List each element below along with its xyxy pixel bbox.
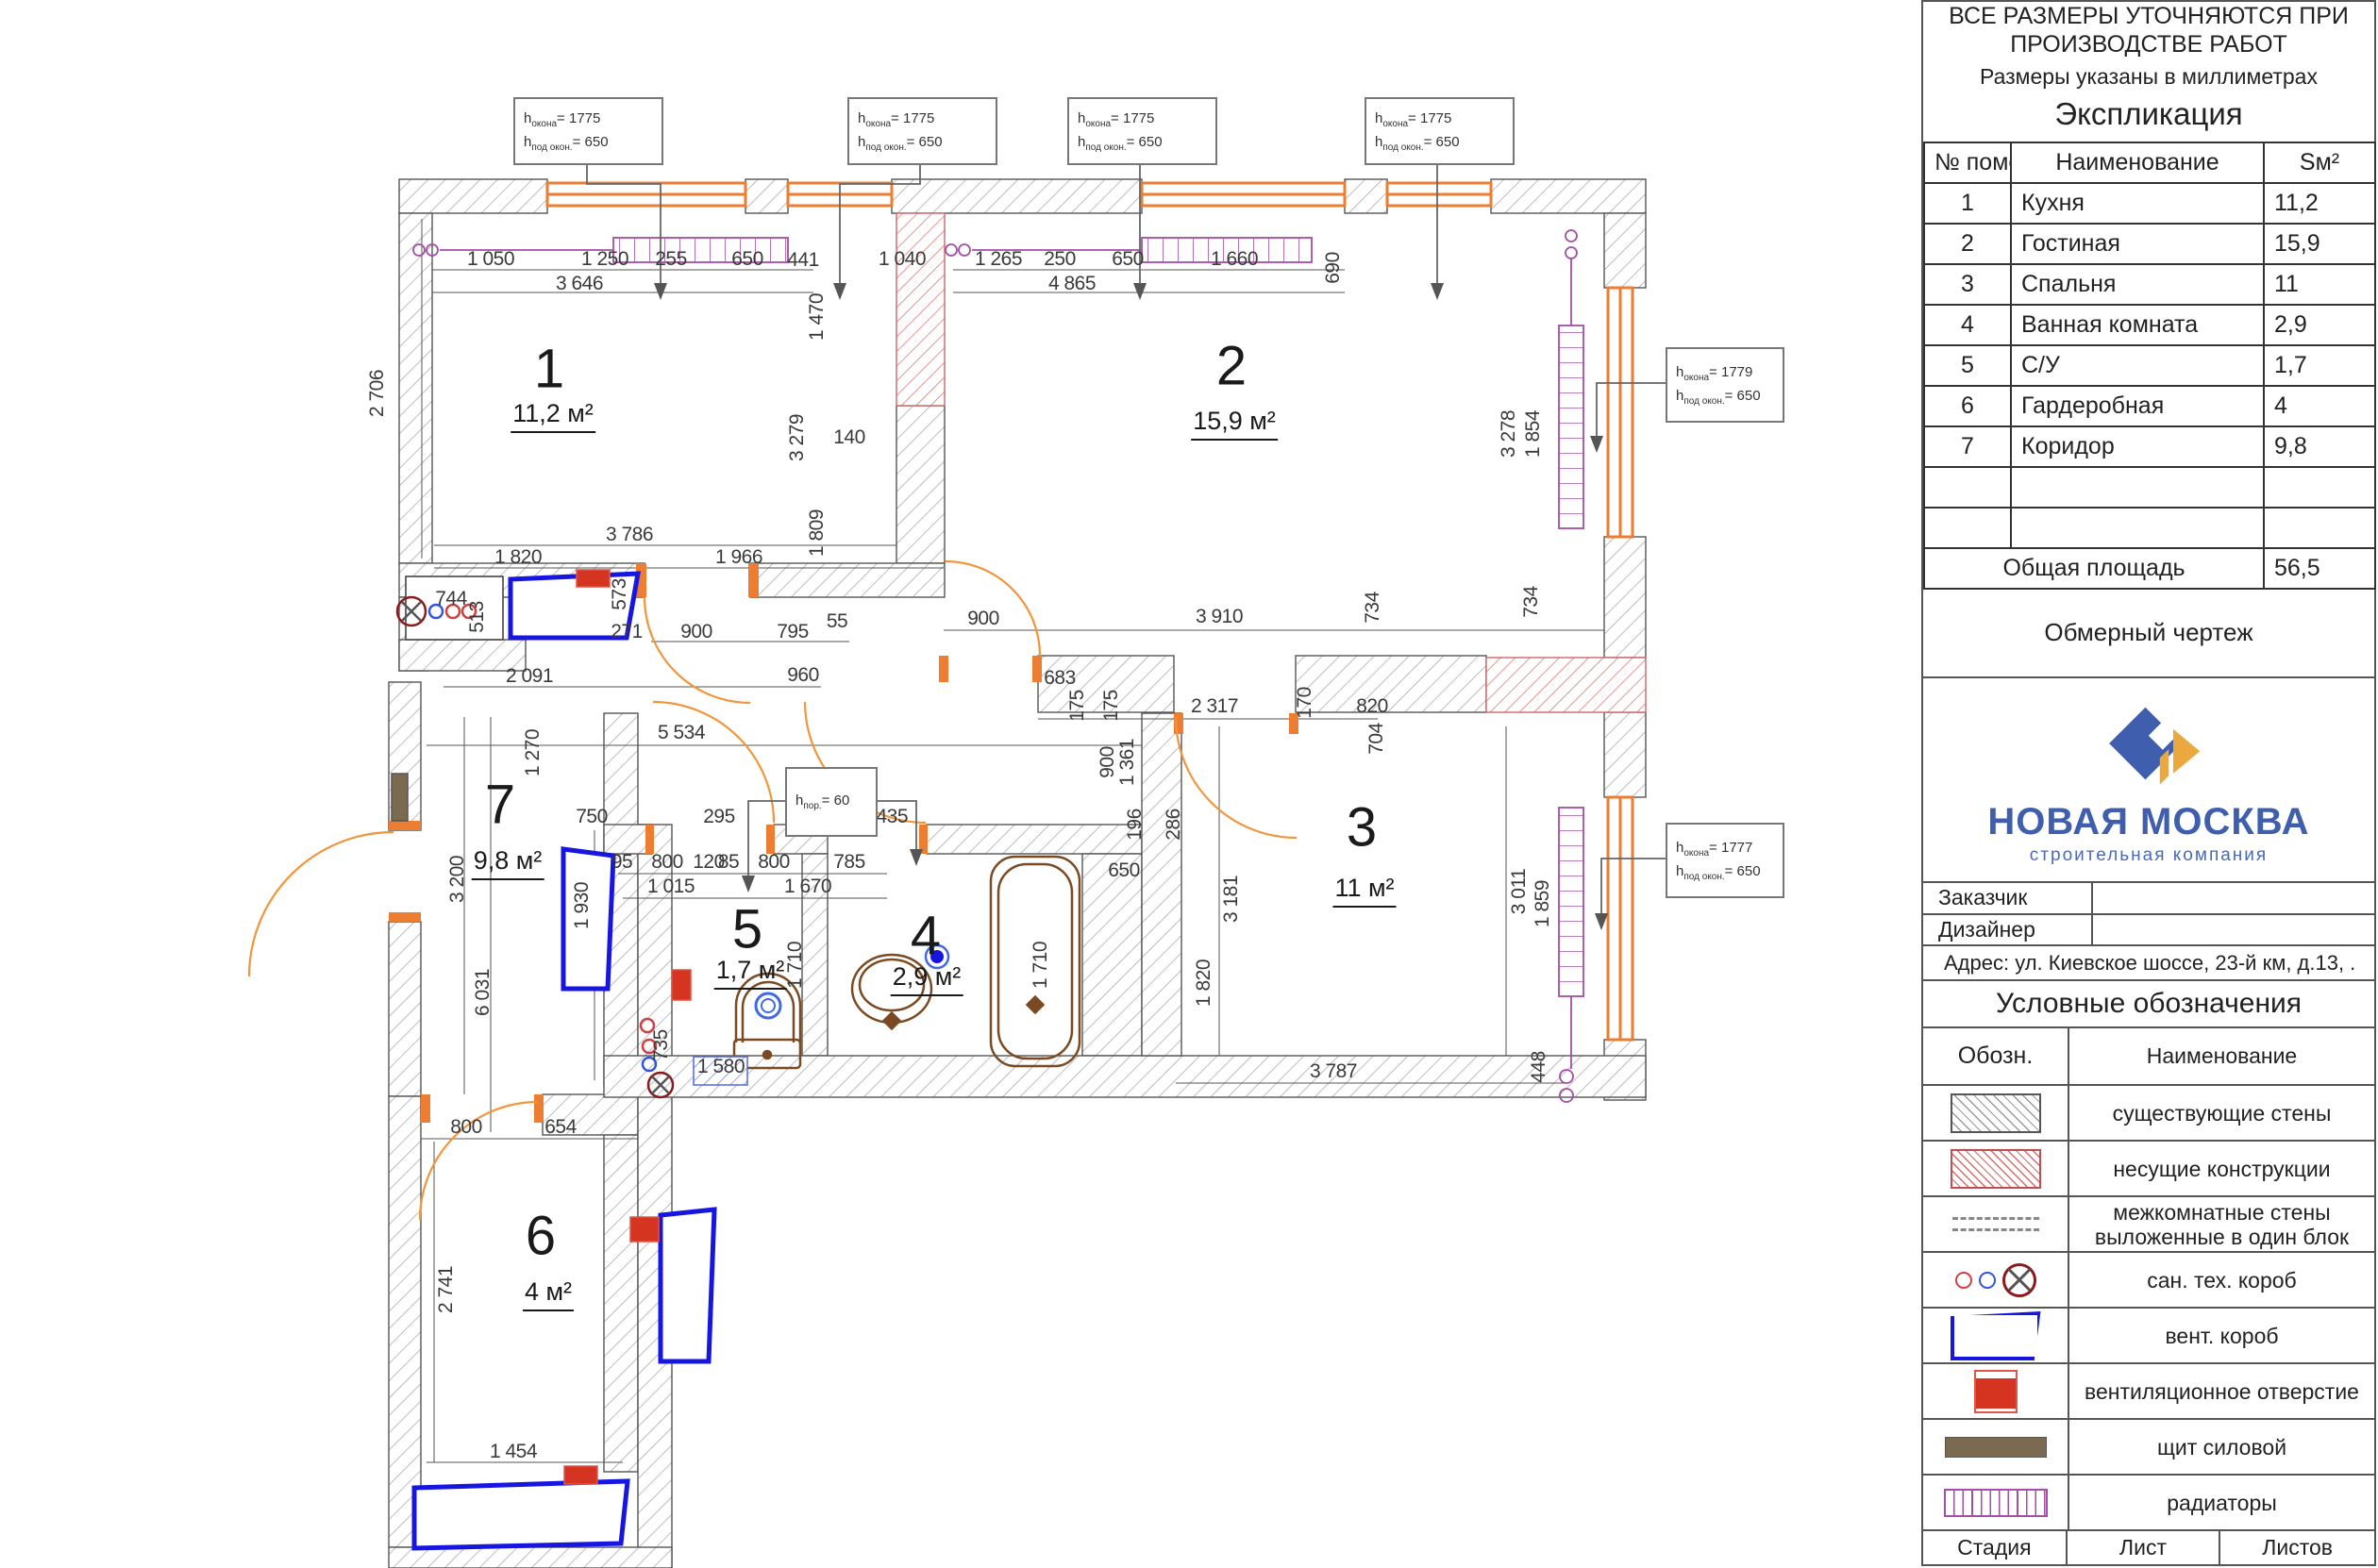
explication-row xyxy=(1924,467,2375,508)
room-area: 9,8 м² xyxy=(472,846,544,880)
window-height-callout: hокона= 1779hпод окон.= 650 xyxy=(1666,347,1784,423)
company-logo: НОВАЯ МОСКВА строительная компания xyxy=(1923,678,2374,883)
field-designer: Дизайнер xyxy=(1923,915,2374,947)
callout-line: hпод окон.= 650 xyxy=(858,131,987,156)
dimension-label: 2 091 xyxy=(506,665,553,688)
callout-line: hокона= 1775 xyxy=(1078,108,1207,132)
footer-stage: Стадия xyxy=(1923,1531,2068,1564)
legend-label: щит силовой xyxy=(2069,1420,2374,1474)
dimension-label: 3 278 xyxy=(1498,410,1520,458)
dimension-label: 3 787 xyxy=(1310,1060,1357,1083)
total-area-value: 56,5 xyxy=(2264,548,2375,589)
footer-sheet: Лист xyxy=(2068,1531,2221,1564)
note-line-1: ВСЕ РАЗМЕРЫ УТОЧНЯЮТСЯ ПРИ xyxy=(1949,2,2349,30)
legend-row: радиаторы xyxy=(1923,1476,2374,1531)
callout-line: hпод окон.= 650 xyxy=(1078,131,1207,156)
callout-line: hпод окон.= 650 xyxy=(524,131,653,156)
explication-row: 1Кухня11,2 xyxy=(1924,183,2375,224)
explication-title: Экспликация xyxy=(1923,96,2374,142)
dimension-label: 6 031 xyxy=(472,969,494,1016)
explication-cell: 9,8 xyxy=(2264,426,2375,467)
dimension-label: 286 xyxy=(1163,809,1185,841)
legend-row: межкомнатные стены выложенные в один бло… xyxy=(1923,1197,2374,1253)
window-height-callout: hокона= 1775hпод окон.= 650 xyxy=(1067,97,1217,165)
callout-line: hокона= 1775 xyxy=(858,108,987,132)
explication-row: 7Коридор9,8 xyxy=(1924,426,2375,467)
san-tech-duct-icon xyxy=(1923,1253,2069,1307)
dimension-label: 1 854 xyxy=(1522,410,1545,458)
explication-cell: 5 xyxy=(1924,345,2011,386)
dimension-label: 250 xyxy=(1044,248,1076,271)
note-line-3: Размеры указаны в миллиметрах xyxy=(1980,64,2318,90)
legend-header: Обозн. Наименование xyxy=(1923,1028,2374,1087)
dimension-label: 255 xyxy=(655,248,687,271)
legend-rows: существующие стенынесущие конструкциимеж… xyxy=(1923,1086,2374,1531)
window-height-callout: hокона= 1775hпод окон.= 650 xyxy=(513,97,663,165)
explication-cell: Спальня xyxy=(2011,264,2264,305)
explication-cell: 3 xyxy=(1924,264,2011,305)
field-designer-label: Дизайнер xyxy=(1923,915,2093,945)
dimension-label: 1 454 xyxy=(490,1441,537,1463)
dimension-label: 1 710 xyxy=(1030,942,1052,989)
legend-row: вентиляционное отверстие xyxy=(1923,1364,2374,1420)
window-height-callout: hокона= 1775hпод окон.= 650 xyxy=(1365,97,1515,165)
dimension-label: 2 317 xyxy=(1191,695,1238,718)
dimension-label: 683 xyxy=(1044,667,1076,690)
footer-sheets: Листов xyxy=(2220,1531,2374,1564)
col-header-area: Sм² xyxy=(2264,142,2375,183)
explication-row: 2Гостиная15,9 xyxy=(1924,224,2375,264)
explication-cell: 6 xyxy=(1924,386,2011,426)
dimension-label: 1 265 xyxy=(975,248,1022,271)
dimension-label: 1 859 xyxy=(1532,880,1554,927)
callout-line: hпор.= 60 xyxy=(795,790,867,814)
dimension-label: 734 xyxy=(1362,592,1384,624)
dimension-label: 650 xyxy=(1108,859,1140,882)
explication-cell: 4 xyxy=(2264,386,2375,426)
legend-label: межкомнатные стены выложенные в один бло… xyxy=(2069,1197,2374,1251)
window-height-callout: hокона= 1777hпод окон.= 650 xyxy=(1666,823,1784,898)
dimension-label: 1 809 xyxy=(806,509,829,557)
explication-cell: Ванная комната xyxy=(2011,305,2264,345)
legend-header-symbol: Обозн. xyxy=(1923,1028,2069,1085)
legend-row: вент. короб xyxy=(1923,1309,2374,1364)
explication-cell xyxy=(2264,508,2375,548)
power-panel-icon xyxy=(1923,1420,2069,1474)
room-area: 2,9 м² xyxy=(891,962,963,996)
room-number: 4 xyxy=(911,905,941,968)
total-area-label: Общая площадь xyxy=(1924,548,2264,589)
dimension-label: 1 270 xyxy=(522,729,544,776)
explication-cell: 7 xyxy=(1924,426,2011,467)
dimension-label: 3 011 xyxy=(1508,869,1531,915)
title-block: ВСЕ РАЗМЕРЫ УТОЧНЯЮТСЯ ПРИ ПРОИЗВОДСТВЕ … xyxy=(1921,0,2376,1566)
dimension-label: 85 xyxy=(718,851,739,874)
vent-opening-icon xyxy=(1923,1364,2069,1418)
legend-label: несущие конструкции xyxy=(2069,1142,2374,1195)
dimension-label: 650 xyxy=(731,248,763,271)
room-area: 11 м² xyxy=(1332,874,1396,908)
legend-label: вентиляционное отверстие xyxy=(2069,1364,2374,1418)
dimension-label: 55 xyxy=(827,610,847,633)
dimension-label: 800 xyxy=(651,851,683,874)
note-line-2: ПРОИЗВОДСТВЕ РАБОТ xyxy=(2010,30,2287,58)
callout-line: hокона= 1777 xyxy=(1676,837,1774,861)
dimension-label: 448 xyxy=(1528,1051,1550,1083)
dimension-label: 1 040 xyxy=(879,248,926,271)
dimension-label: 3 646 xyxy=(556,273,603,295)
dimension-label: 1 580 xyxy=(697,1056,745,1078)
dimension-label: 690 xyxy=(1322,252,1345,284)
dimension-label: 800 xyxy=(450,1116,482,1139)
company-subtitle: строительная компания xyxy=(2030,845,2268,866)
dimension-label: 900 xyxy=(967,608,999,630)
legend-label: радиаторы xyxy=(2069,1476,2374,1529)
explication-cell: Коридор xyxy=(2011,426,2264,467)
explication-cell: 2,9 xyxy=(2264,305,2375,345)
dimension-label: 295 xyxy=(703,806,735,828)
window-height-callout: hокона= 1775hпод окон.= 650 xyxy=(847,97,997,165)
explication-cell: 15,9 xyxy=(2264,224,2375,264)
legend-label: вент. короб xyxy=(2069,1309,2374,1362)
dimension-label: 1 470 xyxy=(806,293,829,341)
dimension-label: 1 820 xyxy=(494,546,542,569)
dimension-label: 960 xyxy=(787,664,819,687)
room-number: 2 xyxy=(1216,335,1247,398)
explication-cell: С/У xyxy=(2011,345,2264,386)
dimension-label: 170 xyxy=(1294,687,1316,719)
explication-row: 5С/У1,7 xyxy=(1924,345,2375,386)
dimension-label: 1 710 xyxy=(784,942,807,989)
explication-row xyxy=(1924,508,2375,548)
room-number: 1 xyxy=(534,338,564,401)
dimension-label: 1 250 xyxy=(581,248,628,271)
dimension-label: 900 xyxy=(680,621,712,643)
dimension-label: 654 xyxy=(544,1116,577,1139)
dimension-label: 2 741 xyxy=(435,1266,458,1313)
legend-label: существующие стены xyxy=(2069,1086,2374,1140)
explication-cell: 2 xyxy=(1924,224,2011,264)
explication-cell: 1,7 xyxy=(2264,345,2375,386)
room-number: 6 xyxy=(526,1205,556,1268)
logo-icon xyxy=(2093,693,2204,799)
dimension-label: 441 xyxy=(787,249,819,272)
explication-cell: Кухня xyxy=(2011,183,2264,224)
field-designer-value xyxy=(2093,915,2374,945)
dimension-label: 3 279 xyxy=(786,414,809,461)
dimension-label: 3 786 xyxy=(606,524,653,546)
address-row: Адрес: ул. Киевское шоссе, 23-й км, д.13… xyxy=(1923,946,2374,981)
dimension-label: 795 xyxy=(777,621,809,643)
interroom-walls-dashed-icon xyxy=(1923,1197,2069,1251)
dimension-label: 650 xyxy=(1112,248,1144,271)
dimension-label: 573 xyxy=(609,578,631,610)
room-number: 3 xyxy=(1347,796,1377,859)
explication-row: 6Гардеробная4 xyxy=(1924,386,2375,426)
dimension-label: 1 050 xyxy=(467,248,514,271)
legend-row: несущие конструкции xyxy=(1923,1142,2374,1197)
explication-cell xyxy=(1924,508,2011,548)
dimension-label: 175 xyxy=(1066,690,1089,722)
dimension-label: 2 706 xyxy=(366,370,389,417)
window-height-callout: hпор.= 60 xyxy=(785,767,878,837)
vent-duct-icon xyxy=(1923,1309,2069,1362)
callout-line: hпод окон.= 650 xyxy=(1375,131,1504,156)
room-area: 1,7 м² xyxy=(714,956,787,990)
explication-cell: 4 xyxy=(1924,305,2011,345)
legend-title: Условные обозначения xyxy=(1923,981,2374,1028)
dimension-label: 1 361 xyxy=(1116,739,1139,786)
dimension-label: 820 xyxy=(1356,695,1388,718)
field-customer: Заказчик xyxy=(1923,883,2374,915)
dimension-label: 1 015 xyxy=(647,876,695,898)
col-header-name: Наименование xyxy=(2011,142,2264,183)
floor-plan: 1 0501 2502556504413 6461 0401 265250650… xyxy=(0,0,1921,1568)
dimension-label: 95 xyxy=(611,851,632,874)
dimension-label: 3 200 xyxy=(446,856,469,903)
dimension-label: 4 865 xyxy=(1048,273,1096,295)
explication-row: 3Спальня11 xyxy=(1924,264,2375,305)
explication-cell xyxy=(2011,467,2264,508)
explication-row: 4Ванная комната2,9 xyxy=(1924,305,2375,345)
legend-header-name: Наименование xyxy=(2069,1028,2374,1085)
dimension-label: 1 966 xyxy=(715,546,762,569)
existing-walls-hatch-icon xyxy=(1923,1086,2069,1140)
drawing-type: Обмерный чертеж xyxy=(1923,590,2374,678)
legend-row: существующие стены xyxy=(1923,1086,2374,1142)
dimension-label: 3 910 xyxy=(1196,606,1243,628)
radiators-icon xyxy=(1923,1476,2069,1529)
dimension-label: 1 820 xyxy=(1193,959,1215,1007)
callout-line: hпод окон.= 650 xyxy=(1676,385,1774,409)
explication-cell xyxy=(2011,508,2264,548)
room-number: 7 xyxy=(485,774,515,837)
legend-row: щит силовой xyxy=(1923,1420,2374,1476)
dimension-label: 196 xyxy=(1124,809,1147,841)
dimension-label: 175 xyxy=(1100,690,1123,722)
dimension-label: 513 xyxy=(466,601,489,633)
bearing-structures-hatch-icon xyxy=(1923,1142,2069,1195)
dimension-label: 5 534 xyxy=(658,722,705,744)
explication-cell: 11 xyxy=(2264,264,2375,305)
col-header-number: № помещ. xyxy=(1924,142,2011,183)
legend-label: сан. тех. короб xyxy=(2069,1253,2374,1307)
dimension-label: 800 xyxy=(758,851,790,874)
callout-line: hокона= 1779 xyxy=(1676,361,1774,386)
dimension-label: 744 xyxy=(435,588,467,610)
field-customer-label: Заказчик xyxy=(1923,883,2093,913)
field-customer-value xyxy=(2093,883,2374,913)
dimension-label: 704 xyxy=(1365,723,1388,755)
explication-cell: Гостиная xyxy=(2011,224,2264,264)
dimension-label: 140 xyxy=(833,426,865,449)
dimension-label: 734 xyxy=(1520,586,1543,618)
room-area: 15,9 м² xyxy=(1191,407,1278,441)
explication-cell: 11,2 xyxy=(2264,183,2375,224)
dimension-label: 1 670 xyxy=(784,876,831,898)
dimension-label: 3 181 xyxy=(1220,876,1243,923)
legend-row: сан. тех. короб xyxy=(1923,1253,2374,1309)
room-area: 11,2 м² xyxy=(511,399,595,433)
explication-table: № помещ. Наименование Sм² 1Кухня11,22Гос… xyxy=(1923,142,2376,590)
explication-cell xyxy=(2264,467,2375,508)
callout-line: hокона= 1775 xyxy=(1375,108,1504,132)
callout-line: hпод окон.= 650 xyxy=(1676,860,1774,885)
dimension-label: 750 xyxy=(576,806,608,828)
explication-cell: 1 xyxy=(1924,183,2011,224)
company-name: НОВАЯ МОСКВА xyxy=(1987,801,2309,843)
measurement-drawing-page: 1 0501 2502556504413 6461 0401 265250650… xyxy=(0,0,2378,1568)
plan-labels: 1 0501 2502556504413 6461 0401 265250650… xyxy=(0,0,1921,1568)
explication-cell: Гардеробная xyxy=(2011,386,2264,426)
dimension-label: 735 xyxy=(650,1029,673,1061)
room-number: 5 xyxy=(732,898,762,961)
title-block-footer: Стадия Лист Листов xyxy=(1923,1531,2374,1564)
explication-cell xyxy=(1924,467,2011,508)
dimension-label: 1 930 xyxy=(571,882,594,929)
callout-line: hокона= 1775 xyxy=(524,108,653,132)
dimension-label: 271 xyxy=(611,621,643,643)
dimension-label: 1 660 xyxy=(1211,248,1258,271)
title-block-note: ВСЕ РАЗМЕРЫ УТОЧНЯЮТСЯ ПРИ ПРОИЗВОДСТВЕ … xyxy=(1923,2,2374,96)
room-area: 4 м² xyxy=(523,1277,574,1311)
dimension-label: 785 xyxy=(833,851,865,874)
